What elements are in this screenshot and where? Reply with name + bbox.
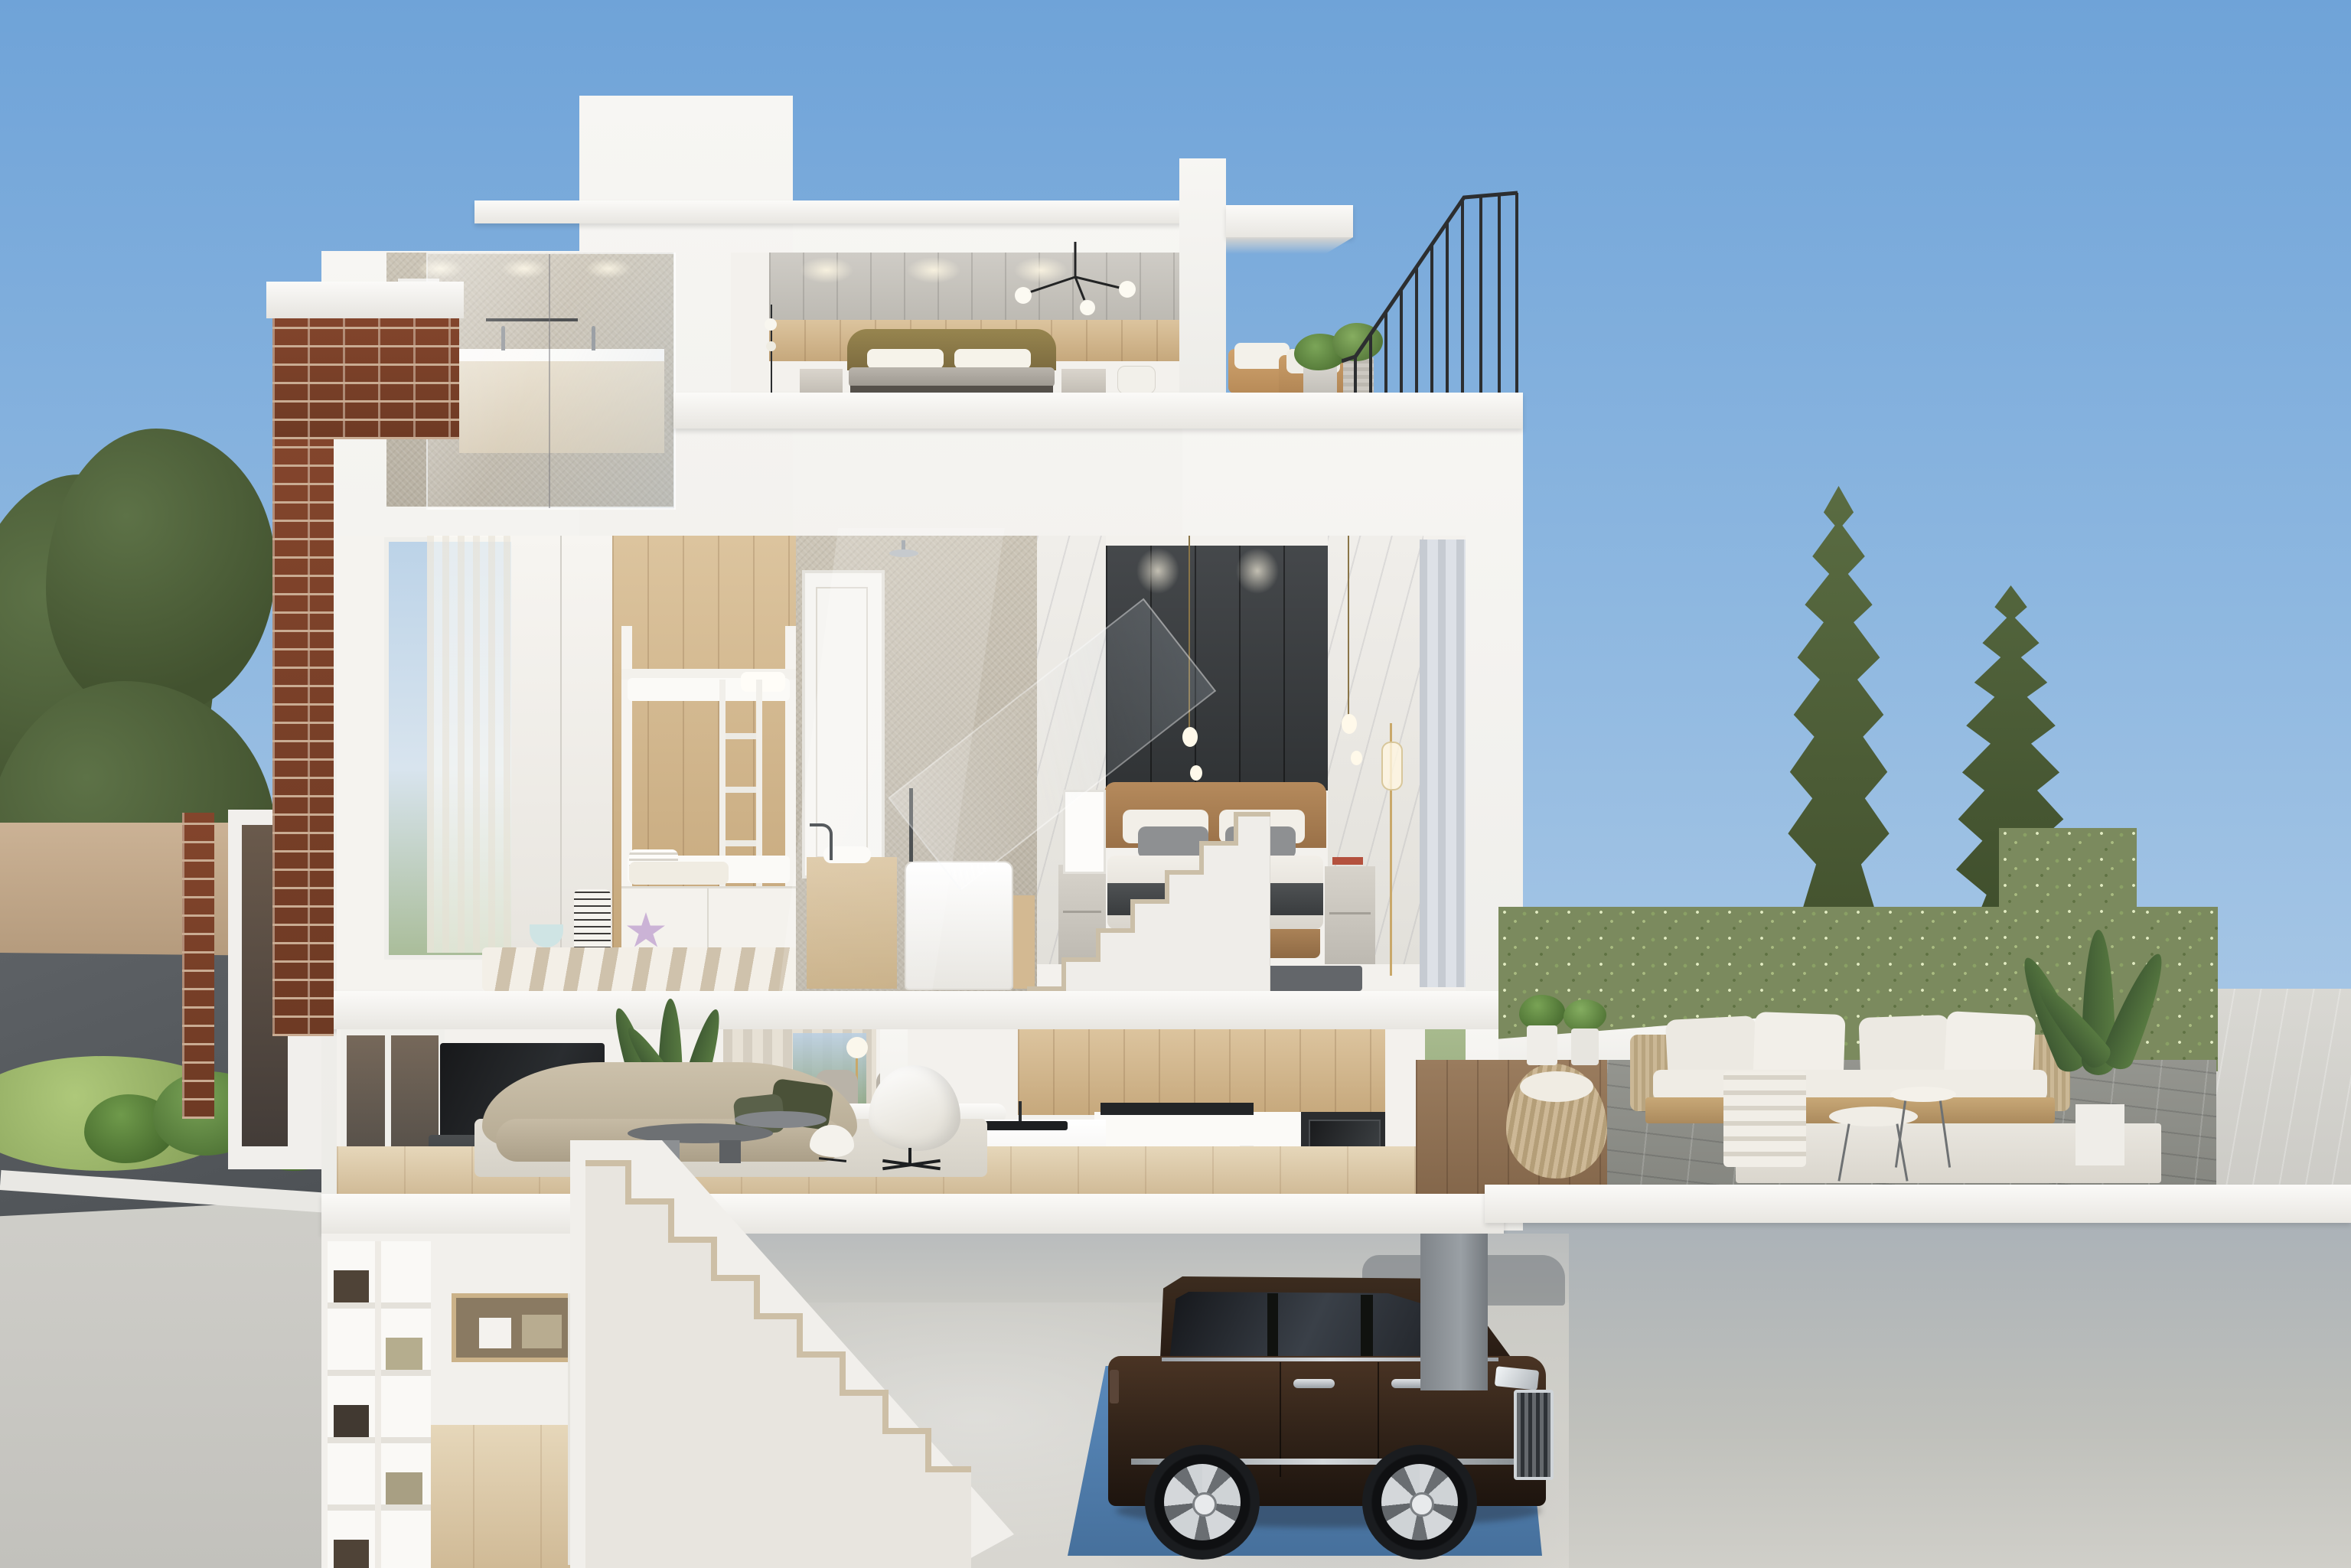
wardrobe-door-seam (560, 536, 562, 950)
wardrobe-downlight (1236, 548, 1279, 594)
car-b-pillar (1267, 1293, 1278, 1362)
wheel-cap (1410, 1492, 1434, 1517)
wicker-cushion (1520, 1071, 1593, 1102)
bunk-bed (621, 626, 796, 960)
podium-wall (1485, 1194, 2351, 1568)
wardrobe-spotlight-glow (800, 257, 853, 283)
glass-door-seam (549, 254, 550, 508)
outdoor-side-table-tall (1890, 1087, 1956, 1171)
lamp-shade (1381, 742, 1403, 791)
drawer-line (1329, 912, 1371, 914)
table-leg (1939, 1100, 1951, 1168)
bed (847, 329, 1056, 393)
white-stool (1117, 366, 1156, 394)
niche-box (522, 1315, 562, 1348)
lamp-globe (846, 1037, 868, 1058)
car-wheel-front (1362, 1445, 1477, 1560)
table-top (1890, 1087, 1956, 1102)
storage-box-olive (386, 1338, 422, 1370)
shelf-divider (375, 1241, 381, 1568)
pot-plant (1564, 999, 1606, 1032)
range-hood (1101, 1103, 1254, 1115)
sidewalk (0, 1198, 360, 1568)
plant-pot (2075, 1104, 2124, 1165)
car-c-pillar (1361, 1295, 1373, 1362)
toy-basket (574, 889, 611, 954)
niche-box (479, 1318, 511, 1348)
nightstand (800, 369, 843, 393)
cutaway-scene (0, 0, 2351, 1568)
wicker-pod-chair (1506, 1064, 1607, 1195)
car-rear-lamp (1110, 1370, 1119, 1403)
wheel-cap (1192, 1492, 1217, 1517)
duvet (849, 367, 1055, 387)
master-curtain (1420, 540, 1466, 987)
bed-base (850, 386, 1053, 393)
nightstand (1061, 369, 1106, 393)
pendant-globe (1342, 714, 1357, 734)
car-grille (1514, 1390, 1554, 1480)
floor-lamp (760, 305, 783, 393)
brick-column (272, 439, 334, 1036)
table-leg (1895, 1100, 1906, 1168)
gold-floor-lamp (1380, 723, 1403, 983)
garage-column (1420, 1234, 1488, 1390)
pendant-globe (1182, 727, 1198, 747)
roof-floor-slab (673, 393, 1523, 429)
storage-box-dark (334, 1540, 369, 1568)
pendant-light-pair (1342, 700, 1365, 807)
roof-fin (1179, 158, 1226, 419)
car-wheel-rear (1145, 1445, 1260, 1560)
lamp-globe (765, 318, 777, 331)
brick-gatepost (182, 813, 214, 1119)
bunk-room (337, 536, 796, 991)
bottom-bunk-blanket (629, 862, 729, 885)
pendant-globe (1190, 765, 1202, 781)
roof-bedroom (731, 253, 1179, 393)
bunk-wardrobe (511, 536, 612, 950)
nightstand (1325, 866, 1375, 964)
storage-box-olive (386, 1472, 422, 1504)
pendant-globe (1351, 751, 1362, 765)
pillow (867, 349, 944, 369)
seat-cushion (1653, 1070, 2047, 1100)
white-pot (1527, 1025, 1557, 1065)
banana-plant (2013, 930, 2189, 1175)
staircase-basement (570, 1094, 1022, 1568)
ladder-rung (726, 840, 756, 846)
table-leg (1837, 1123, 1850, 1181)
terrace-railing (1342, 184, 1523, 406)
terrace-pot-plants (1519, 995, 1611, 1068)
storage-shelf-unit (328, 1241, 431, 1568)
ladder-rung (726, 787, 756, 793)
storage-box-dark (334, 1270, 369, 1302)
wardrobe-spotlight-glow (907, 257, 960, 283)
storage-box-dark (334, 1405, 369, 1437)
books-stack (1332, 857, 1363, 865)
lamp-globe (766, 341, 776, 351)
white-pot (1571, 1028, 1599, 1065)
terrace-fascia (1485, 1185, 2351, 1223)
pendant-cord (1348, 536, 1349, 716)
ladder-rung (726, 733, 756, 739)
car-door-handle (1293, 1379, 1335, 1388)
pillow (954, 349, 1031, 369)
tree-canopy (46, 429, 276, 719)
third-floor-slab (321, 991, 1504, 1029)
roof-slab (474, 200, 1182, 223)
chimney-cap (266, 282, 464, 318)
branch-chandelier (983, 242, 1159, 318)
brick-chimney (272, 318, 459, 439)
throw-blanket (1723, 1071, 1806, 1167)
bunk-curtain (427, 536, 513, 953)
wardrobe-downlight (1136, 548, 1179, 594)
roof-terrace (1221, 184, 1523, 421)
